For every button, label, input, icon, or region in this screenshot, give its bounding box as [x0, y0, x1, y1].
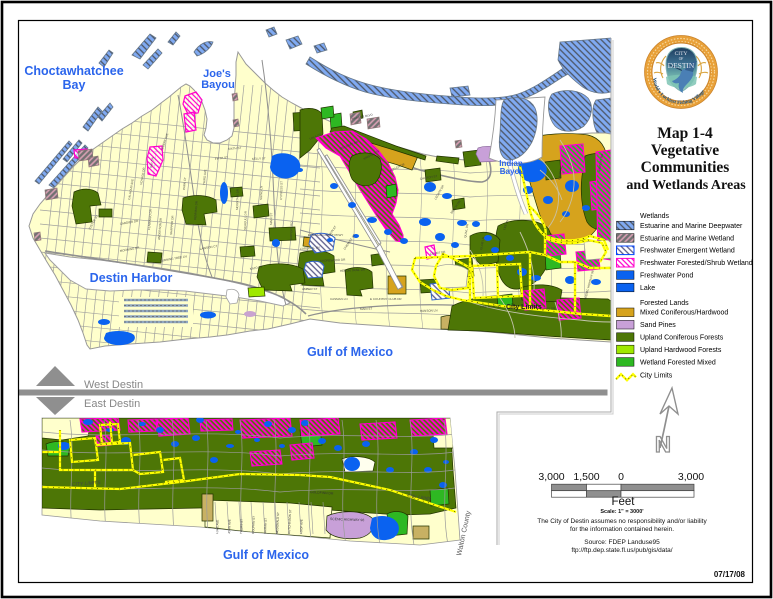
svg-text:SHING LN: SHING LN: [259, 186, 263, 200]
svg-text:SEAGULL DR: SEAGULL DR: [243, 210, 248, 230]
svg-text:MAIN ST: MAIN ST: [360, 307, 372, 311]
svg-text:City Limits: City Limits: [506, 304, 542, 311]
svg-text:3,000: 3,000: [538, 471, 564, 483]
svg-text:Estuarine and Marine Wetland: Estuarine and Marine Wetland: [640, 235, 734, 242]
svg-text:Wetland Forested Mixed: Wetland Forested Mixed: [640, 359, 716, 366]
svg-text:Upland Hardwood Forests: Upland Hardwood Forests: [640, 347, 722, 354]
svg-text:DESTIN: DESTIN: [668, 61, 695, 70]
svg-text:N: N: [655, 432, 671, 457]
svg-text:Freshwater Emergent Wetland: Freshwater Emergent Wetland: [640, 248, 735, 255]
svg-text:Gulf of Mexico: Gulf of Mexico: [307, 345, 393, 359]
svg-text:Wetlands: Wetlands: [640, 213, 670, 220]
svg-text:JOHN AVE: JOHN AVE: [227, 519, 232, 534]
svg-text:E COUNTRY CLUB DR: E COUNTRY CLUB DR: [370, 297, 402, 301]
svg-text:PINE ROAD ST: PINE ROAD ST: [480, 304, 501, 309]
svg-text:THURS ST: THURS ST: [239, 519, 244, 534]
svg-text:Bayou: Bayou: [500, 167, 525, 176]
svg-text:Communities: Communities: [641, 159, 730, 176]
svg-text:MAIN ST: MAIN ST: [269, 213, 273, 225]
svg-text:0: 0: [618, 471, 624, 483]
svg-text:CYPRESS ST: CYPRESS ST: [279, 181, 284, 200]
svg-text:07/17/08: 07/17/08: [714, 570, 746, 579]
svg-text:Upland Coniferous Forests: Upland Coniferous Forests: [640, 335, 724, 342]
svg-text:SHIRAH ST: SHIRAH ST: [263, 518, 268, 534]
svg-text:HANSON LN: HANSON LN: [420, 308, 438, 313]
svg-text:Freshwater Pond: Freshwater Pond: [640, 273, 693, 280]
svg-text:KELLY ST: KELLY ST: [252, 156, 266, 161]
svg-text:Bay: Bay: [63, 78, 86, 92]
svg-text:for the information contained: for the information contained herein.: [570, 526, 674, 533]
svg-text:LUKE AVE: LUKE AVE: [215, 520, 220, 534]
svg-text:BAYOU DR: BAYOU DR: [540, 306, 556, 311]
svg-text:City Limits: City Limits: [640, 373, 673, 380]
svg-text:Choctawhatchee: Choctawhatchee: [24, 64, 123, 78]
svg-text:Destin Harbor: Destin Harbor: [90, 271, 173, 285]
svg-text:MOUNTAIN DR: MOUNTAIN DR: [235, 188, 240, 210]
svg-text:Sand Pines: Sand Pines: [640, 322, 676, 329]
svg-text:3,000: 3,000: [678, 471, 704, 483]
svg-text:Bayou: Bayou: [201, 79, 235, 91]
svg-text:AIRPORT RD: AIRPORT RD: [289, 221, 294, 240]
svg-text:Forested Lands: Forested Lands: [640, 300, 689, 307]
svg-text:1,500: 1,500: [573, 471, 599, 483]
svg-text:West Destin: West Destin: [84, 379, 143, 391]
svg-text:LOOP AVE: LOOP AVE: [299, 519, 304, 534]
svg-text:Source: FDEP Landuse95: Source: FDEP Landuse95: [584, 539, 660, 546]
svg-text:Estuarine and Marine Deepwater: Estuarine and Marine Deepwater: [640, 223, 743, 230]
svg-text:East Destin: East Destin: [84, 398, 140, 410]
svg-text:Freshwater Forested/Shrub Wetl: Freshwater Forested/Shrub Wetland: [640, 260, 753, 267]
svg-text:The City of Destin assumes no: The City of Destin assumes no responsibi…: [537, 518, 707, 525]
svg-text:Map 1-4: Map 1-4: [657, 125, 713, 142]
svg-text:Mixed Coniferous/Hardwood: Mixed Coniferous/Hardwood: [640, 310, 728, 317]
svg-text:Lake: Lake: [640, 285, 655, 292]
svg-text:ftp://ftp.dep.state.fl.us/pub/: ftp://ftp.dep.state.fl.us/pub/gis/data/: [571, 547, 672, 554]
svg-text:CASMAN LN: CASMAN LN: [330, 297, 348, 301]
svg-text:AMBER ST: AMBER ST: [302, 287, 318, 291]
svg-text:Gulf of Mexico: Gulf of Mexico: [223, 548, 309, 562]
svg-text:Feet: Feet: [611, 496, 635, 508]
svg-text:and Wetlands Areas: and Wetlands Areas: [626, 178, 746, 193]
svg-text:EMERALD COAST PKWY: EMERALD COAST PKWY: [308, 233, 343, 237]
svg-text:Vegetative: Vegetative: [651, 142, 719, 159]
svg-text:Scale: 1" = 3000': Scale: 1" = 3000': [600, 509, 644, 515]
